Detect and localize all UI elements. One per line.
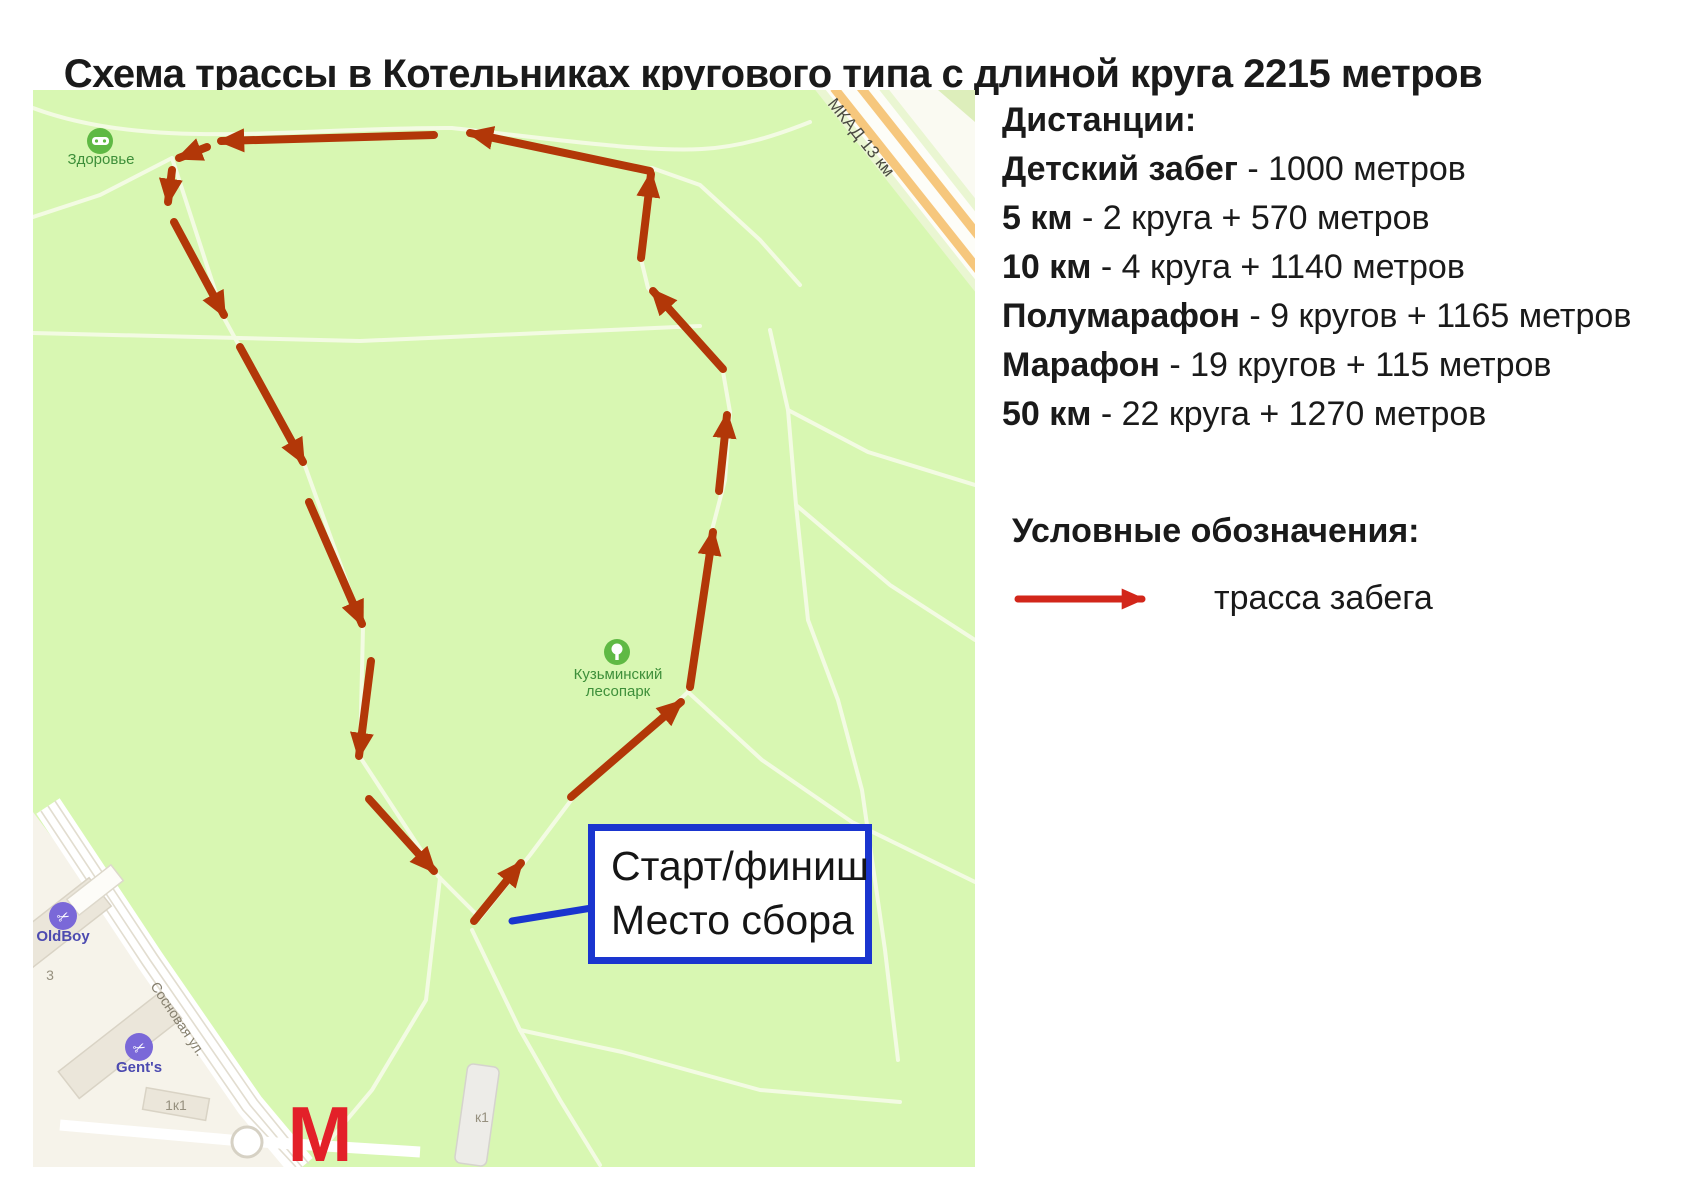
- distance-name: Полумарафон: [1002, 297, 1240, 335]
- park-poi-label: Кузьминский: [574, 666, 663, 683]
- map: 3 1к1 к1 МКАД 13 км Сосновая ул. Здоровь…: [33, 90, 975, 1167]
- distances-panel: Дистанции: Детский забег - 1000 метров 5…: [1002, 96, 1631, 439]
- legend-heading: Условные обозначения:: [1012, 512, 1433, 551]
- distance-row: 5 км - 2 круга + 570 метров: [1002, 194, 1631, 243]
- distance-value: - 1000 метров: [1238, 150, 1466, 188]
- start-finish-line1: Старт/финиш: [611, 839, 851, 893]
- distance-row: 50 км - 22 круга + 1270 метров: [1002, 390, 1631, 439]
- distance-name: 50 км: [1002, 395, 1091, 433]
- legend: Условные обозначения: трасса забега: [1012, 512, 1433, 618]
- park-poi: [604, 639, 630, 665]
- legend-item-label: трасса забега: [1214, 579, 1433, 618]
- legend-item: трасса забега: [1012, 579, 1433, 618]
- building-number-label: 3: [46, 967, 54, 983]
- distances-heading: Дистанции:: [1002, 96, 1631, 145]
- roundabout: [232, 1127, 262, 1157]
- start-finish-line2: Место сбора: [611, 893, 851, 947]
- distance-row: Детский забег - 1000 метров: [1002, 145, 1631, 194]
- metro-logo-icon: М: [288, 1090, 353, 1167]
- building-number-label: к1: [475, 1109, 489, 1125]
- distance-value: - 9 кругов + 1165 метров: [1240, 297, 1632, 335]
- map-canvas: 3 1к1 к1 МКАД 13 км Сосновая ул. Здоровь…: [33, 90, 975, 1167]
- page: Схема трассы в Котельниках кругового тип…: [0, 0, 1692, 1200]
- distance-name: Детский забег: [1002, 150, 1238, 188]
- route-arrow-segment: [168, 170, 172, 202]
- route-arrow-icon: [1012, 586, 1172, 612]
- distance-row: Марафон - 19 кругов + 115 метров: [1002, 341, 1631, 390]
- distance-row: 10 км - 4 круга + 1140 метров: [1002, 243, 1631, 292]
- distance-value: - 2 круга + 570 метров: [1073, 199, 1430, 237]
- distance-value: - 22 круга + 1270 метров: [1091, 395, 1486, 433]
- distance-name: Марафон: [1002, 346, 1160, 384]
- barbershop-poi: ✂: [49, 902, 77, 930]
- distance-value: - 4 круга + 1140 метров: [1091, 248, 1464, 286]
- barbershop-poi: ✂: [125, 1033, 153, 1061]
- park-poi-label: лесопарк: [586, 683, 651, 700]
- barbershop-label: OldBoy: [36, 928, 90, 945]
- start-finish-box: Старт/финиш Место сбора: [588, 824, 872, 964]
- distance-name: 5 км: [1002, 199, 1073, 237]
- distance-row: Полумарафон - 9 кругов + 1165 метров: [1002, 292, 1631, 341]
- distance-name: 10 км: [1002, 248, 1091, 286]
- building-number-label: 1к1: [165, 1097, 187, 1113]
- barbershop-label: Gent's: [116, 1059, 162, 1076]
- health-poi-label: Здоровье: [68, 151, 135, 168]
- distance-value: - 19 кругов + 115 метров: [1160, 346, 1552, 384]
